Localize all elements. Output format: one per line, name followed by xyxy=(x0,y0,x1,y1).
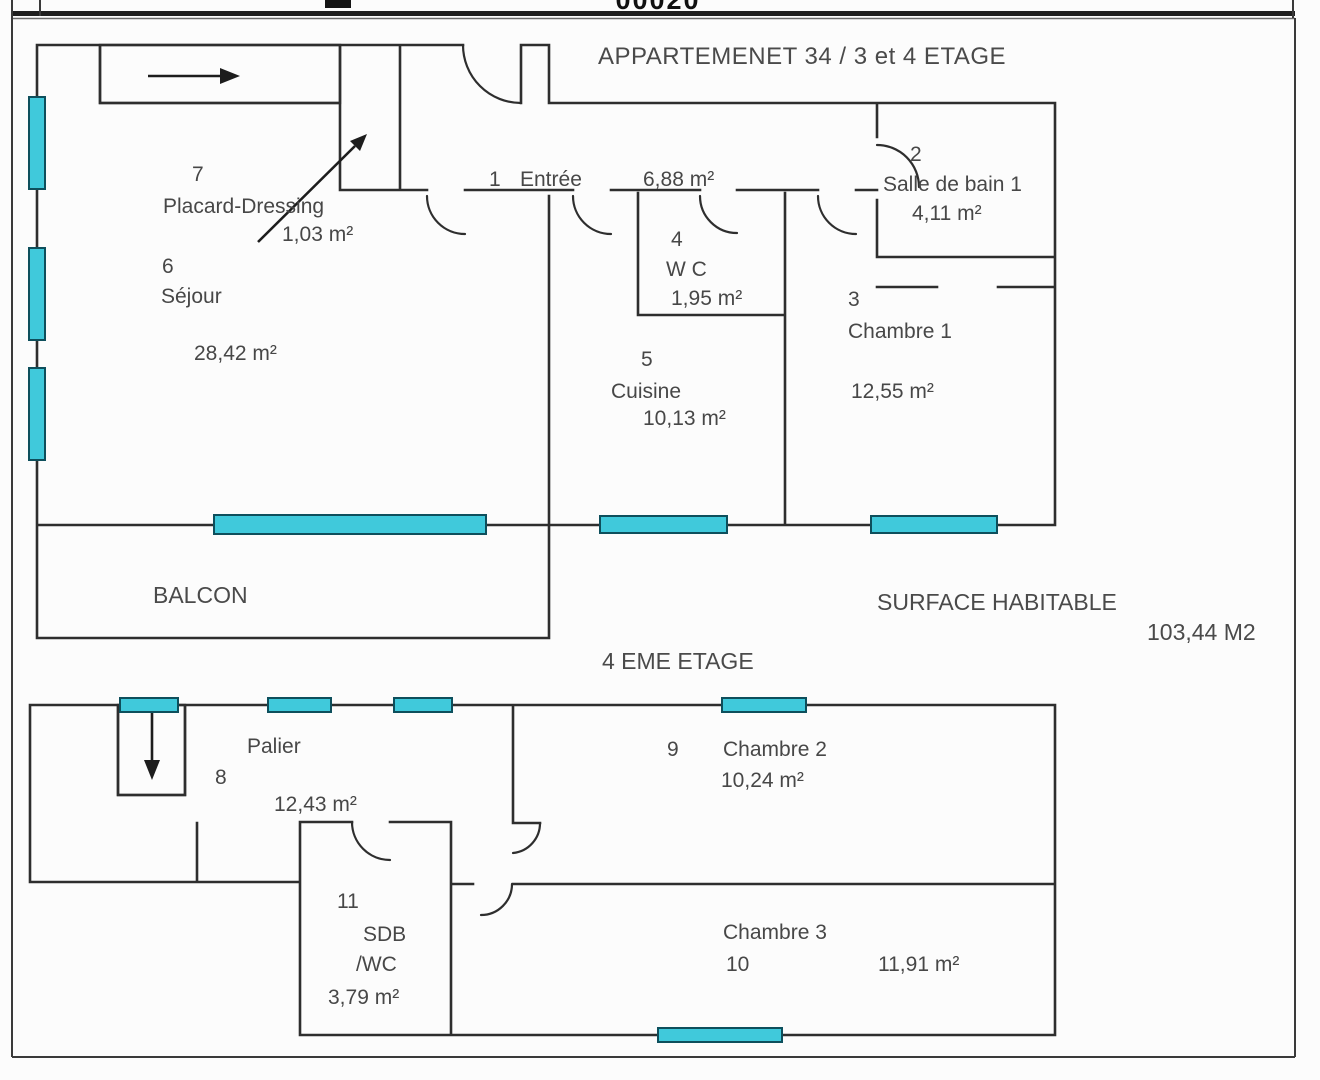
window xyxy=(871,516,997,533)
room-9-area: 10,24 m² xyxy=(721,769,804,792)
room-9-number: 9 xyxy=(667,738,679,761)
window xyxy=(29,248,45,340)
room-11-number: 11 xyxy=(337,890,359,913)
room-4-name: W C xyxy=(666,258,707,281)
window xyxy=(394,698,452,712)
window xyxy=(29,97,45,189)
window xyxy=(658,1028,782,1042)
room-2-name: Salle de bain 1 xyxy=(883,173,1022,196)
room-2-area: 4,11 m² xyxy=(912,202,982,225)
surface-label: SURFACE HABITABLE xyxy=(877,589,1117,615)
window xyxy=(600,516,727,533)
room-5-name: Cuisine xyxy=(611,380,681,403)
room-1-area: 6,88 m² xyxy=(643,168,714,191)
room-7-number: 7 xyxy=(192,163,204,186)
header-rule-bar xyxy=(12,11,1295,16)
room-7-name: Placard-Dressing xyxy=(163,195,324,218)
room-6-name: Séjour xyxy=(161,285,222,308)
room-1-name: Entrée xyxy=(520,168,582,191)
surface-value: 103,44 M2 xyxy=(1147,619,1256,645)
room-10-area: 11,91 m² xyxy=(878,953,959,976)
paper-background xyxy=(0,0,1320,1080)
room-5-area: 10,13 m² xyxy=(643,407,726,430)
room-11-name-line2: /WC xyxy=(356,953,397,976)
room-8-area: 12,43 m² xyxy=(274,793,357,816)
balcony-label: BALCON xyxy=(153,582,248,608)
room-11-area: 3,79 m² xyxy=(328,986,399,1009)
window xyxy=(268,698,331,712)
floor1-title: APPARTEMENET 34 / 3 et 4 ETAGE xyxy=(598,43,1006,70)
room-10-name: Chambre 3 xyxy=(723,921,827,944)
room-6-area: 28,42 m² xyxy=(194,342,277,365)
room-4-number: 4 xyxy=(671,228,683,251)
room-1-number: 1 xyxy=(489,168,501,191)
floor2-title: 4 EME ETAGE xyxy=(602,648,754,674)
room-6-number: 6 xyxy=(162,255,174,278)
floorplan-canvas: 00020 xyxy=(0,0,1320,1080)
room-7-area: 1,03 m² xyxy=(282,223,353,246)
room-11-name: SDB xyxy=(363,923,406,946)
window xyxy=(120,698,178,712)
room-9-name: Chambre 2 xyxy=(723,738,827,761)
floor-plan-page: 00020 xyxy=(0,0,1320,1080)
room-10-number: 10 xyxy=(726,953,749,976)
room-4-area: 1,95 m² xyxy=(671,287,742,310)
room-3-number: 3 xyxy=(848,288,860,311)
room-3-area: 12,55 m² xyxy=(851,380,934,403)
window xyxy=(722,698,806,712)
window xyxy=(29,368,45,460)
room-8-name: Palier xyxy=(247,735,301,758)
window xyxy=(214,515,486,534)
room-8-number: 8 xyxy=(215,766,227,789)
scan-artifact xyxy=(325,0,351,8)
room-3-name: Chambre 1 xyxy=(848,320,952,343)
room-5-number: 5 xyxy=(641,348,653,371)
room-2-number: 2 xyxy=(910,143,922,166)
